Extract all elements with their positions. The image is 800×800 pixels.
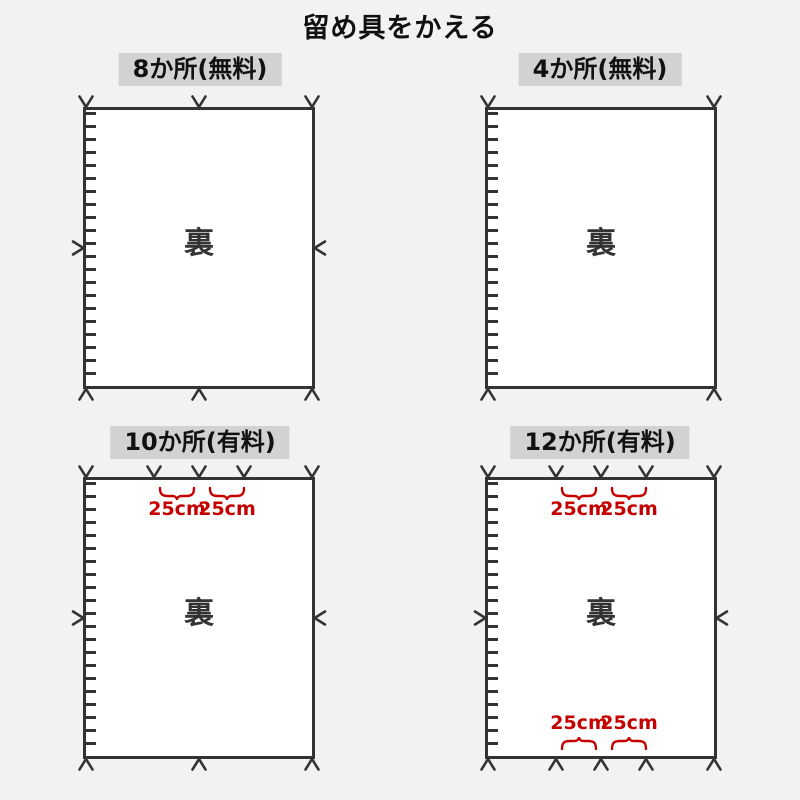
fastener-mark-icon xyxy=(716,609,729,627)
panel-12-places: 12か所(有料) 裏 25cm 25cm 25cm 25cm xyxy=(400,418,800,800)
fastener-mark-icon xyxy=(705,388,723,401)
stitch-ticks-icon xyxy=(86,112,96,384)
panel-4-places: 4か所(無料) 裏 xyxy=(400,45,800,417)
fastener-mark-icon xyxy=(190,388,208,401)
fastener-mark-icon xyxy=(190,465,208,478)
stitch-ticks-icon xyxy=(86,482,96,754)
fastener-mark-icon xyxy=(547,758,565,771)
panel-8-places-label: 8か所(無料) xyxy=(119,53,282,86)
measure-brace-icon xyxy=(560,737,598,751)
fastener-mark-icon xyxy=(72,609,85,627)
measure-brace-icon xyxy=(610,737,648,751)
measurement-label: 25cm xyxy=(148,499,206,520)
fastener-mark-icon xyxy=(474,609,487,627)
stitch-ticks-icon xyxy=(488,482,498,754)
fastener-mark-icon xyxy=(303,758,321,771)
fastener-mark-icon xyxy=(77,388,95,401)
cover-back-outline-4: 裏 xyxy=(485,107,717,389)
fastener-mark-icon xyxy=(72,239,85,257)
fastener-mark-icon xyxy=(314,609,327,627)
panel-12-places-label: 12か所(有料) xyxy=(510,426,689,459)
stitch-ticks-icon xyxy=(488,112,498,384)
measurement-label: 25cm xyxy=(600,713,658,734)
cover-back-outline-10: 裏 25cm 25cm xyxy=(83,477,315,759)
fastener-mark-icon xyxy=(592,758,610,771)
fastener-mark-icon xyxy=(235,465,253,478)
fastener-mark-icon xyxy=(77,758,95,771)
panel-10-places-label: 10か所(有料) xyxy=(110,426,289,459)
fastener-mark-icon xyxy=(145,465,163,478)
panel-10-places: 10か所(有料) 裏 25cm 25cm xyxy=(0,418,400,800)
fastener-mark-icon xyxy=(190,95,208,108)
fastener-mark-icon xyxy=(592,465,610,478)
measurement-label: 25cm xyxy=(198,499,256,520)
fastener-mark-icon xyxy=(479,95,497,108)
measurement-label: 25cm xyxy=(600,499,658,520)
page-title: 留め具をかえる xyxy=(0,6,800,45)
fastener-mark-icon xyxy=(705,465,723,478)
fastener-mark-icon xyxy=(77,95,95,108)
fastener-mark-icon xyxy=(479,388,497,401)
fastener-mark-icon xyxy=(303,95,321,108)
fastener-mark-icon xyxy=(705,95,723,108)
fastener-mark-icon xyxy=(190,758,208,771)
fastener-mark-icon xyxy=(637,758,655,771)
back-side-label: 裏 xyxy=(586,218,616,262)
fastener-mark-icon xyxy=(547,465,565,478)
fastener-mark-icon xyxy=(637,465,655,478)
fastener-mark-icon xyxy=(479,465,497,478)
measurement-label: 25cm xyxy=(550,713,608,734)
fastener-mark-icon xyxy=(77,465,95,478)
back-side-label: 裏 xyxy=(184,588,214,632)
fastener-options-diagram: 留め具をかえる 8か所(無料) 裏 4か所(無料) 裏 10か xyxy=(0,0,800,800)
fastener-mark-icon xyxy=(314,239,327,257)
back-side-label: 裏 xyxy=(184,218,214,262)
fastener-mark-icon xyxy=(303,388,321,401)
fastener-mark-icon xyxy=(705,758,723,771)
fastener-mark-icon xyxy=(303,465,321,478)
fastener-mark-icon xyxy=(479,758,497,771)
back-side-label: 裏 xyxy=(586,588,616,632)
panel-4-places-label: 4か所(無料) xyxy=(519,53,682,86)
measurement-label: 25cm xyxy=(550,499,608,520)
panel-8-places: 8か所(無料) 裏 xyxy=(0,45,400,417)
cover-back-outline-12: 裏 25cm 25cm 25cm 25cm xyxy=(485,477,717,759)
cover-back-outline-8: 裏 xyxy=(83,107,315,389)
